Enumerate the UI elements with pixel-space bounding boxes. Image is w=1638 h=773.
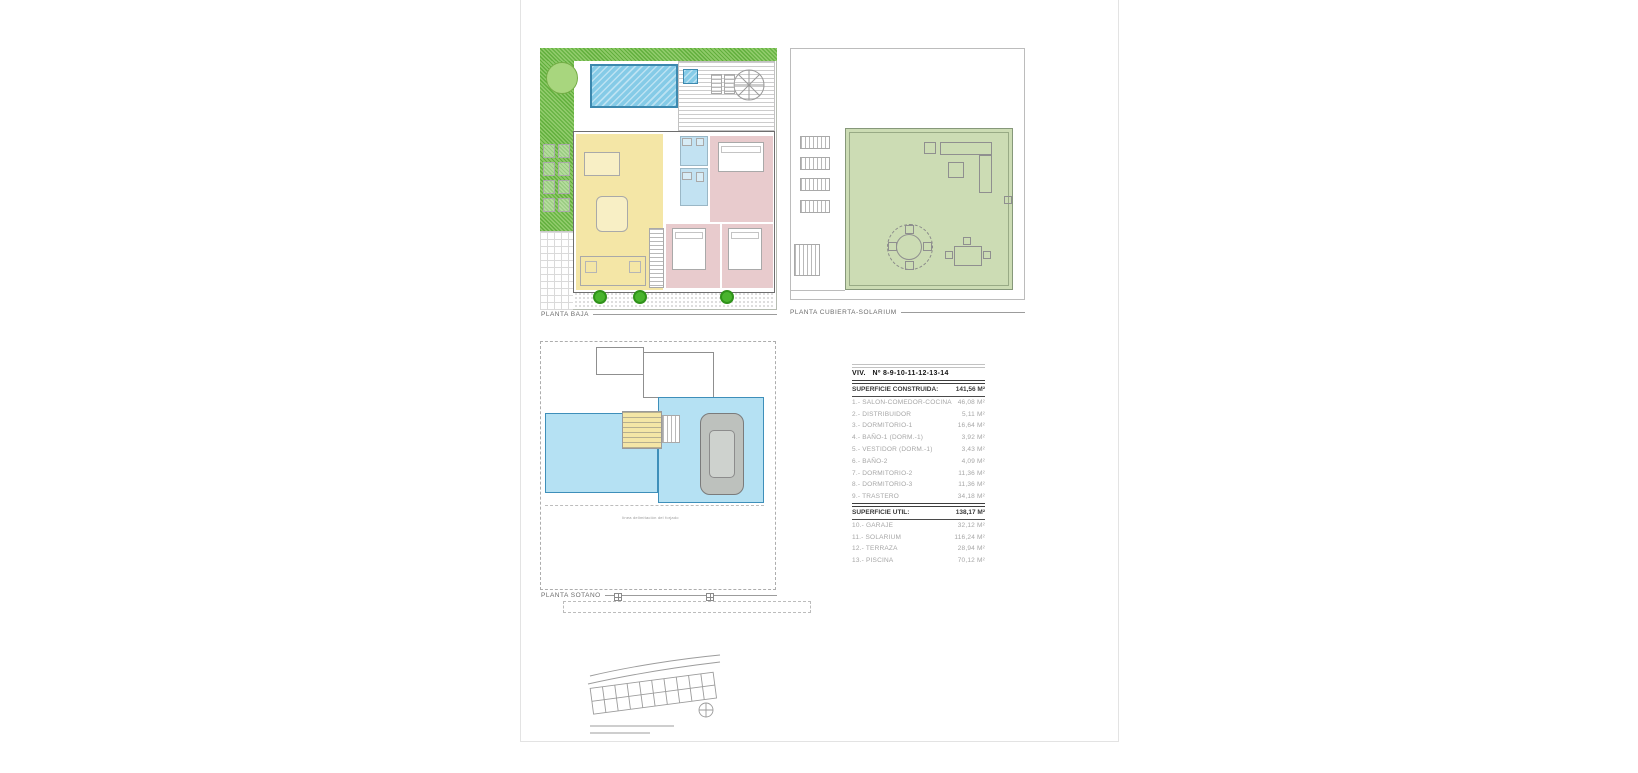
planter-box xyxy=(543,180,555,194)
row-label: 9.- TRASTERO xyxy=(852,493,899,500)
dimension-tick xyxy=(614,593,622,601)
side-table xyxy=(924,142,936,154)
header-value: 141,56 M² xyxy=(956,386,985,393)
stair-landing xyxy=(662,415,680,443)
row-label: 5.- VESTIDOR (DORM.-1) xyxy=(852,446,933,453)
table-row: 3.- DORMITORIO-1 16,64 M² xyxy=(852,420,985,432)
table-row: 4.- BAÑO-1 (DORM.-1) 3,92 M² xyxy=(852,432,985,444)
table-row: 5.- VESTIDOR (DORM.-1) 3,43 M² xyxy=(852,444,985,456)
outdoor-sofa xyxy=(940,142,992,155)
site-location-plan xyxy=(586,650,724,742)
row-value: 116,24 M² xyxy=(954,534,985,541)
planter-box xyxy=(558,144,570,158)
shrub xyxy=(633,290,647,304)
chair xyxy=(983,251,991,259)
header-label: SUPERFICIE CONSTRUIDA: xyxy=(852,386,938,393)
skylight-louver xyxy=(800,178,830,191)
retaining-wall-step xyxy=(596,347,644,375)
wall-line xyxy=(790,290,845,291)
table-row: 11.- SOLARIUM 116,24 M² xyxy=(852,531,985,543)
row-value: 4,09 M² xyxy=(962,458,985,465)
plan-label-text: PLANTA SOTANO xyxy=(541,592,601,599)
row-value: 5,11 M² xyxy=(962,411,985,418)
grass-strip-top xyxy=(540,48,777,61)
bed-outline xyxy=(718,142,764,172)
table-row: 1.- SALON-COMEDOR-COCINA 46,08 M² xyxy=(852,397,985,409)
bath-fixture xyxy=(682,172,692,180)
planta-cubierta-label: PLANTA CUBIERTA-SOLARIUM xyxy=(790,309,1025,316)
planta-baja-plan xyxy=(540,48,777,310)
outdoor-sofa xyxy=(979,155,992,193)
row-label: 4.- BAÑO-1 (DORM.-1) xyxy=(852,434,923,441)
planter-box xyxy=(543,144,555,158)
retaining-wall-step xyxy=(643,352,714,398)
skylight-louver xyxy=(800,157,830,170)
planta-sotano-plan: línea delimitación del forjado xyxy=(540,335,777,593)
row-value: 11,36 M² xyxy=(958,470,985,477)
bed-outline xyxy=(728,228,762,270)
excavation-annotation: línea delimitación del forjado xyxy=(622,515,679,520)
dining-table xyxy=(954,246,982,266)
basement-stairs xyxy=(622,411,662,449)
bath-fixture xyxy=(682,138,692,146)
coffee-table xyxy=(948,162,964,178)
row-value: 3,43 M² xyxy=(962,446,985,453)
excavation-line-dashed xyxy=(545,505,764,506)
header-label: SUPERFICIE UTIL: xyxy=(852,509,909,516)
table-row: 2.- DISTRIBUIDOR 5,11 M² xyxy=(852,408,985,420)
chair xyxy=(945,251,953,259)
util-header-row: SUPERFICIE UTIL: 138,17 M² xyxy=(852,507,985,519)
row-value: 3,92 M² xyxy=(962,434,985,441)
car-cabin xyxy=(709,430,735,478)
car-top-view xyxy=(700,413,744,495)
row-label: 2.- DISTRIBUIDOR xyxy=(852,411,911,418)
round-table xyxy=(896,234,922,260)
row-value: 34,18 M² xyxy=(958,493,985,500)
planta-baja-label: PLANTA BAJA xyxy=(541,311,777,318)
shrub xyxy=(720,290,734,304)
plan-label-text: PLANTA CUBIERTA-SOLARIUM xyxy=(790,309,897,316)
skylight-louver xyxy=(800,136,830,149)
row-label: 11.- SOLARIUM xyxy=(852,534,901,541)
chair xyxy=(923,242,932,251)
bath-fixture xyxy=(696,172,704,182)
row-value: 32,12 M² xyxy=(958,522,985,529)
table-title: VIV. Nº 8-9-10-11-12-13-14 xyxy=(852,368,985,380)
roof-stairs xyxy=(794,244,820,276)
table-row: 6.- BAÑO-2 4,09 M² xyxy=(852,455,985,467)
drawing-sheet-page: PLANTA BAJA PLANTA CUBIERTA-SOLARIUM xyxy=(0,0,1638,773)
planter-box xyxy=(558,180,570,194)
table-row: 10.- GARAJE 32,12 M² xyxy=(852,520,985,532)
planter-box xyxy=(543,198,555,212)
row-label: 7.- DORMITORIO-2 xyxy=(852,470,913,477)
row-value: 28,94 M² xyxy=(958,545,985,552)
label-underline xyxy=(901,312,1025,313)
table-row: 7.- DORMITORIO-2 11,36 M² xyxy=(852,467,985,479)
planter-box xyxy=(558,198,570,212)
label-underline xyxy=(593,314,777,315)
sun-lounger xyxy=(711,74,722,94)
header-value: 138,17 M² xyxy=(956,509,985,516)
pavement-boundary-dashed xyxy=(563,601,811,613)
row-value: 70,12 M² xyxy=(958,557,985,564)
planta-sotano-label: PLANTA SOTANO xyxy=(541,592,777,599)
row-label: 1.- SALON-COMEDOR-COCINA xyxy=(852,399,952,406)
shrub xyxy=(593,290,607,304)
planta-cubierta-plan xyxy=(790,48,1025,300)
dimension-tick xyxy=(706,593,714,601)
plan-label-text: PLANTA BAJA xyxy=(541,311,589,318)
row-label: 6.- BAÑO-2 xyxy=(852,458,888,465)
row-value: 11,36 M² xyxy=(958,481,985,488)
parasol-icon xyxy=(732,68,766,102)
planter-box xyxy=(558,162,570,176)
skylight-louver xyxy=(800,200,830,213)
table-row: 12.- TERRAZA 28,94 M² xyxy=(852,543,985,555)
kitchen-counter xyxy=(580,256,646,286)
row-label: 12.- TERRAZA xyxy=(852,545,898,552)
chair xyxy=(888,242,897,251)
bed-outline xyxy=(672,228,706,270)
row-label: 3.- DORMITORIO-1 xyxy=(852,422,913,429)
row-label: 8.- DORMITORIO-3 xyxy=(852,481,913,488)
table-row: 8.- DORMITORIO-3 11,36 M² xyxy=(852,479,985,491)
sun-lounger xyxy=(724,74,735,94)
row-label: 10.- GARAJE xyxy=(852,522,893,529)
spa-jacuzzi xyxy=(683,69,698,84)
row-label: 13.- PISCINA xyxy=(852,557,893,564)
vent-box xyxy=(1004,196,1012,204)
dining-table-outline xyxy=(596,196,628,232)
planter-box xyxy=(543,162,555,176)
table-row: 9.- TRASTERO 34,18 M² xyxy=(852,491,985,503)
staircase xyxy=(649,228,664,288)
label-underline xyxy=(605,595,777,596)
row-value: 16,64 M² xyxy=(958,422,985,429)
chair xyxy=(905,225,914,234)
row-value: 46,08 M² xyxy=(958,399,985,406)
chair xyxy=(905,261,914,270)
chair xyxy=(963,237,971,245)
table-row: 13.- PISCINA 70,12 M² xyxy=(852,555,985,567)
tiled-patio xyxy=(540,231,573,310)
surface-area-table: VIV. Nº 8-9-10-11-12-13-14 SUPERFICIE CO… xyxy=(852,364,985,567)
swimming-pool xyxy=(590,64,678,108)
constructed-header-row: SUPERFICIE CONSTRUIDA: 141,56 M² xyxy=(852,384,985,396)
tree-canopy xyxy=(546,62,578,94)
sofa-outline xyxy=(584,152,620,176)
bath-fixture xyxy=(696,138,704,146)
